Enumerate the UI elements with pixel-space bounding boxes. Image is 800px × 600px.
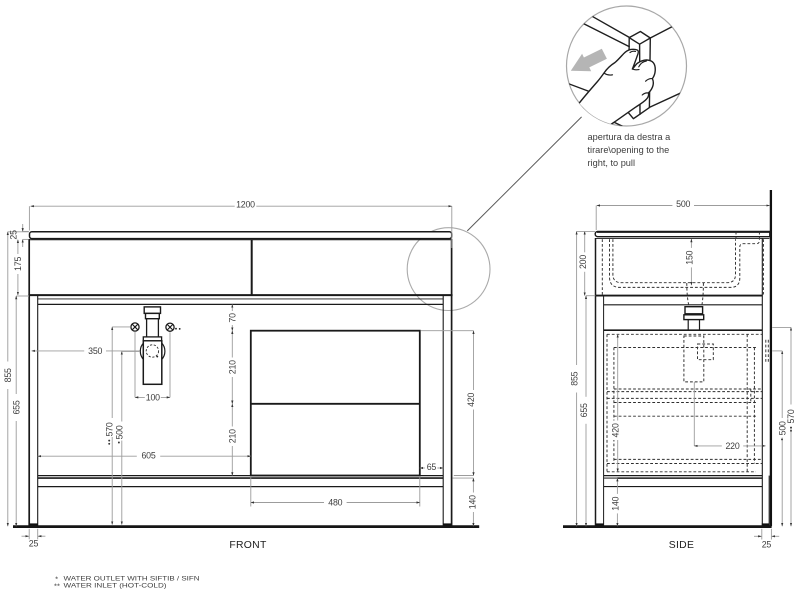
svg-text:655: 655 xyxy=(579,403,589,417)
svg-text:480: 480 xyxy=(328,498,342,508)
svg-text:200: 200 xyxy=(578,255,588,269)
svg-text:tirare\opening to the: tirare\opening to the xyxy=(588,145,670,155)
svg-text:70: 70 xyxy=(227,313,237,323)
svg-text:apertura da destra a: apertura da destra a xyxy=(588,132,672,142)
svg-text:**: ** xyxy=(54,582,60,591)
svg-text:140: 140 xyxy=(611,496,621,510)
svg-text:140: 140 xyxy=(467,495,477,509)
svg-text:855: 855 xyxy=(3,368,13,382)
svg-text:210: 210 xyxy=(227,429,237,443)
svg-text:100: 100 xyxy=(146,392,160,402)
svg-text:right, to pull: right, to pull xyxy=(588,158,636,168)
svg-text:500: 500 xyxy=(676,199,690,209)
svg-text:210: 210 xyxy=(227,360,237,374)
svg-text:150: 150 xyxy=(684,250,694,264)
svg-text:420: 420 xyxy=(610,423,620,437)
svg-text:570: 570 xyxy=(105,422,115,436)
svg-text:500: 500 xyxy=(777,421,787,435)
svg-text:855: 855 xyxy=(569,371,579,385)
svg-text:570: 570 xyxy=(786,409,796,423)
svg-text:25: 25 xyxy=(29,539,39,549)
svg-text:500: 500 xyxy=(114,425,124,439)
svg-text:655: 655 xyxy=(11,400,21,414)
svg-text:FRONT: FRONT xyxy=(229,540,267,551)
svg-text:25: 25 xyxy=(9,230,19,240)
svg-text:25: 25 xyxy=(762,539,772,549)
svg-text:420: 420 xyxy=(466,392,476,406)
svg-text:220: 220 xyxy=(725,441,739,451)
svg-text:65: 65 xyxy=(427,462,437,472)
svg-text:175: 175 xyxy=(13,257,23,271)
svg-text:605: 605 xyxy=(141,451,155,461)
svg-text:1200: 1200 xyxy=(236,200,255,210)
svg-text:350: 350 xyxy=(88,346,102,356)
svg-text:SIDE: SIDE xyxy=(669,540,694,551)
svg-text:WATER INLET (HOT-COLD): WATER INLET (HOT-COLD) xyxy=(64,582,167,589)
